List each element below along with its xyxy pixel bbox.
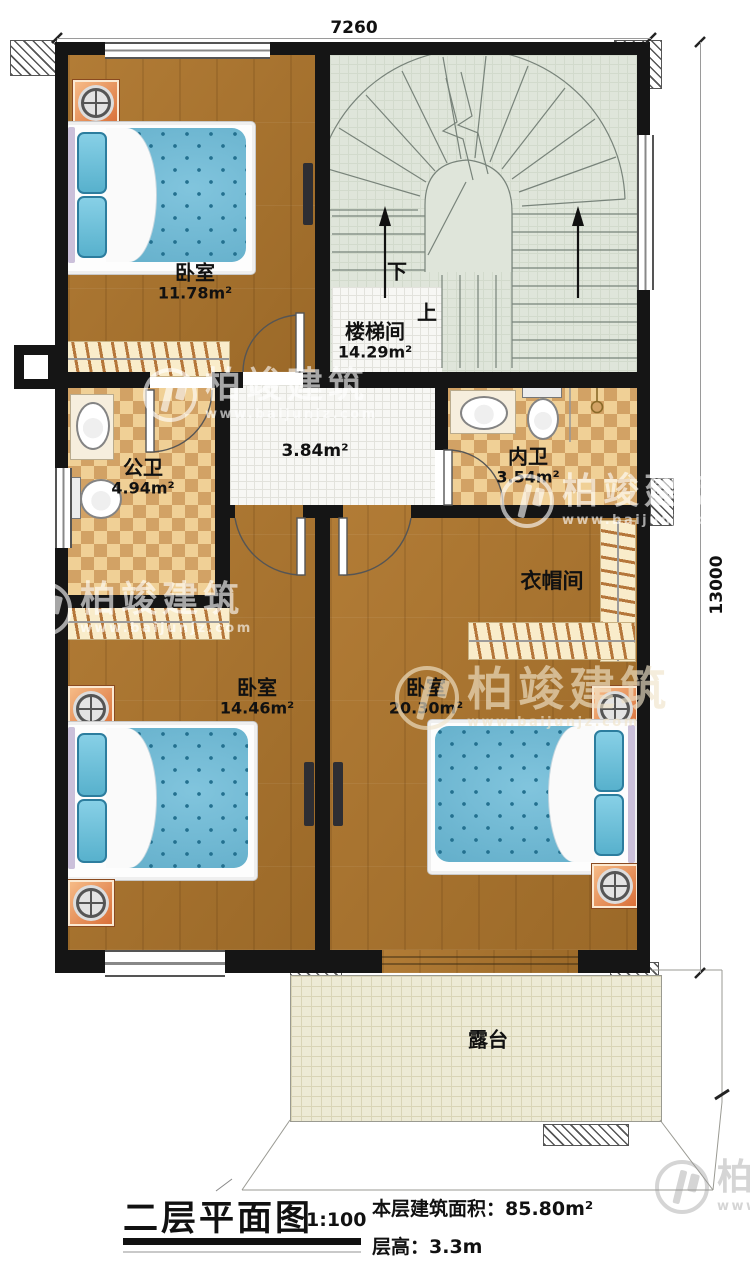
room-label-hallway: 3.84m²: [281, 442, 348, 462]
plan-title: 二层平面图: [123, 1190, 313, 1241]
dimension-line-top: [57, 38, 651, 39]
room-label-bedroom-br: 卧室20.30m²: [389, 676, 463, 717]
room-label-cloakroom: 衣帽间: [521, 569, 584, 593]
room-label-bedroom-bl: 卧室14.46m²: [220, 676, 294, 717]
stair-down-label: 下: [387, 256, 407, 285]
stair-up-label: 上: [417, 297, 437, 326]
dimension-ticks: [52, 33, 705, 978]
dimension-right: 13000: [707, 549, 727, 620]
height-note: 层高：3.3m: [372, 1232, 482, 1259]
linework: [0, 0, 750, 1270]
room-label-ensuite-bath: 内卫3.54m²: [496, 445, 559, 486]
area-note: 本层建筑面积：85.80m²: [372, 1194, 593, 1221]
dimension-line-right: [700, 42, 701, 973]
plan-scale: 1:100: [306, 1209, 366, 1231]
room-label-public-bath: 公卫4.94m²: [111, 456, 174, 497]
roof-outline: [242, 970, 722, 1190]
floor-plan-canvas: 卧室11.78m² 楼梯间14.29m² 下 上 3.84m² 公卫4.94m²…: [0, 0, 750, 1270]
title-underline-thick: [123, 1238, 361, 1245]
dimension-top: 7260: [324, 18, 383, 38]
shower-area: [570, 388, 603, 442]
terrace-door-lines: [382, 957, 578, 964]
room-label-bedroom-tl: 卧室11.78m²: [158, 261, 232, 302]
room-label-stairwell: 楼梯间14.29m²: [338, 320, 412, 361]
room-label-terrace: 露台: [468, 1024, 508, 1053]
title-underline-thin: [123, 1251, 361, 1253]
